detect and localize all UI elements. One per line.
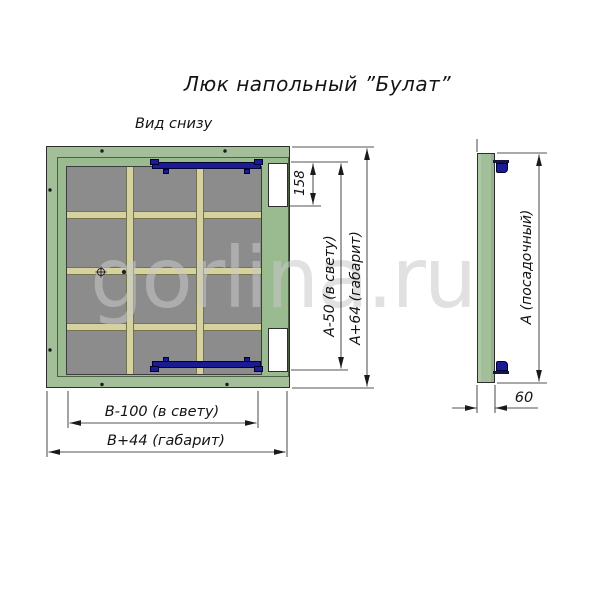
bottom-view-label: Вид снизу <box>135 116 212 132</box>
drawing-page: Люк напольный ”Булат” Вид снизу <box>0 0 600 600</box>
hinge-hook-icon <box>150 159 159 165</box>
stiffener-rib-horizontal <box>67 211 261 219</box>
hinge-bar-bottom <box>150 357 263 372</box>
hinge-hook-icon <box>150 366 159 372</box>
dim-label-recess-height: 158 <box>292 163 308 203</box>
lid-panel-grid <box>66 166 262 375</box>
frame-recess-top <box>268 163 288 207</box>
frame-recess-bottom <box>268 328 288 372</box>
dim-label-clear-width: В-100 (в свету) <box>72 404 252 420</box>
hatch-side-profile <box>477 153 495 383</box>
hinge-foot-icon <box>244 169 250 174</box>
dim-label-overall-width: В+44 (габарит) <box>76 433 256 449</box>
hinge-foot-icon <box>244 357 250 362</box>
hinge-foot-icon <box>163 357 169 362</box>
hinge-hook-side-top <box>496 163 508 173</box>
hinge-foot-icon <box>163 169 169 174</box>
hinge-hook-icon <box>254 366 263 372</box>
hinge-bar <box>152 361 261 368</box>
dim-label-overall-height: А+64 (габарит) <box>348 228 364 348</box>
hinge-hook-side-bottom <box>493 371 509 374</box>
dim-label-seat-height: А (посадочный) <box>519 202 535 332</box>
hinge-bar <box>152 162 261 169</box>
hinge-hook-icon <box>254 159 263 165</box>
hinge-bar-top <box>150 159 263 174</box>
drawing-title: Люк напольный ”Булат” <box>160 72 475 96</box>
stiffener-rib-horizontal <box>67 267 261 275</box>
dim-label-clear-height: А-50 (в свету) <box>322 231 338 341</box>
stiffener-rib-vertical <box>196 167 204 374</box>
stiffener-rib-horizontal <box>67 323 261 331</box>
hinge-hook-side-bottom <box>496 361 508 371</box>
dim-label-depth: 60 <box>504 390 544 406</box>
stiffener-rib-vertical <box>126 167 134 374</box>
